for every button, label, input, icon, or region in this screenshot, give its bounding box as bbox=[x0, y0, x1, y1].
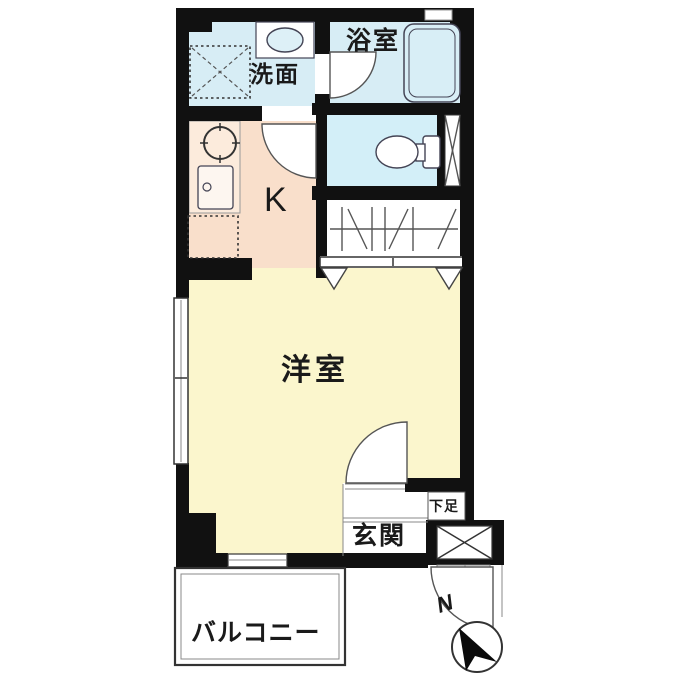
wall-wash-kitchen bbox=[176, 106, 262, 121]
closet-track bbox=[320, 256, 462, 268]
entrance-x-box-icon bbox=[437, 526, 492, 559]
wall-wash-bath-divider bbox=[315, 8, 330, 54]
wall-left-upper bbox=[176, 22, 189, 298]
wall-bath-toilet bbox=[312, 103, 474, 115]
washroom-label: 洗面 bbox=[250, 63, 300, 86]
window-icon bbox=[174, 298, 188, 464]
vent-notch bbox=[425, 10, 452, 20]
floorplan-drawing bbox=[0, 0, 700, 700]
wall-kitchen-room bbox=[176, 258, 252, 280]
wall-bottom-mid bbox=[287, 553, 428, 568]
western-room-label: 洋室 bbox=[281, 356, 349, 386]
wall-bottom-left bbox=[176, 553, 228, 568]
wall-toilet-closet bbox=[312, 186, 474, 200]
bathroom-label: 浴室 bbox=[333, 29, 413, 54]
balcony-window-icon bbox=[228, 554, 287, 567]
balcony-outline bbox=[175, 568, 345, 665]
wall-right bbox=[460, 8, 474, 482]
wall-left-lower bbox=[176, 463, 189, 515]
balcony-label: バルコニー bbox=[191, 621, 321, 646]
kitchen-sink-icon bbox=[198, 166, 233, 209]
entrance-label: 玄関 bbox=[352, 524, 406, 549]
toilet-icon bbox=[376, 136, 440, 168]
compass-icon bbox=[452, 622, 502, 672]
wall-room-entrance bbox=[405, 478, 474, 492]
pipe-space-x-icon bbox=[445, 115, 460, 186]
floor-plan-page: 浴室 洗面 K 洋室 玄関 下足 バルコニー N bbox=[0, 0, 700, 700]
shoe-storage-label: 下足 bbox=[429, 499, 459, 513]
kitchen-label: K bbox=[264, 183, 287, 217]
vanity-sink-icon bbox=[256, 22, 314, 58]
